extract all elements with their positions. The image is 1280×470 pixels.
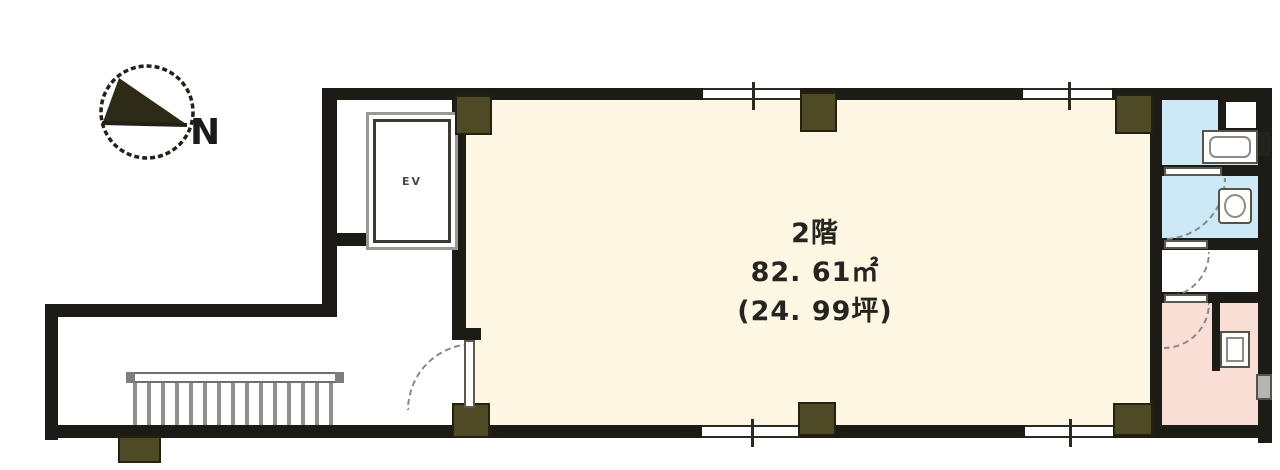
- pillar-wing-bottom: [118, 436, 161, 463]
- left-outer-wall: [45, 304, 58, 440]
- window-mullion: [752, 82, 755, 110]
- entry-door-stub: [452, 328, 481, 340]
- window-bottom-2: [1025, 425, 1113, 438]
- bath-sink-basin: [1226, 337, 1244, 362]
- handrail-post: [335, 372, 344, 383]
- water-heater-box: [1256, 374, 1272, 400]
- window-top-2: [1023, 88, 1112, 100]
- elevator-wall-stub: [322, 233, 368, 246]
- wing-top-wall: [48, 304, 337, 317]
- floor-number-text: 2階: [660, 214, 970, 253]
- area-sqm-text: 82. 61㎡: [660, 253, 970, 292]
- staircase-steps: [133, 383, 338, 427]
- upper-left-wall: [322, 88, 337, 317]
- right-divider-wall: [1150, 95, 1162, 438]
- compass-rose: [95, 58, 205, 168]
- window-bottom-1: [702, 425, 800, 438]
- elevator-shaft: EV: [366, 112, 458, 250]
- pillar-top-right: [1115, 94, 1153, 134]
- entry-door-leaf: [464, 340, 475, 408]
- floor-plan: EV N 2階 82. 61㎡ (24. 99坪): [0, 0, 1280, 470]
- top-wall-segment-1: [322, 88, 703, 100]
- elevator-label: EV: [373, 119, 451, 243]
- alcove-niche: [1226, 102, 1256, 128]
- toilet-bowl: [1224, 194, 1246, 218]
- bath-door-leaf: [1164, 294, 1208, 303]
- toilet-door-leaf: [1164, 167, 1222, 176]
- staircase-handrail: [126, 372, 344, 383]
- pipe-space-box: [1258, 132, 1271, 156]
- area-tsubo-text: (24. 99坪): [660, 292, 970, 331]
- compass-north-label: N: [190, 112, 220, 153]
- powder-counter-basin: [1209, 136, 1251, 158]
- bath-sink-nook-wall: [1212, 303, 1220, 371]
- pillar-bottom-left: [452, 403, 490, 438]
- closet-door-leaf: [1164, 240, 1208, 249]
- window-mullion: [1068, 82, 1071, 110]
- pillar-bottom-mid: [798, 402, 836, 436]
- pillar-top-mid: [800, 92, 837, 132]
- handrail-post: [126, 372, 135, 383]
- pillar-bottom-right: [1113, 403, 1153, 436]
- window-mullion: [1069, 419, 1072, 447]
- pillar-top-left: [455, 95, 492, 135]
- window-top-1: [703, 88, 800, 100]
- area-label: 2階 82. 61㎡ (24. 99坪): [660, 214, 970, 331]
- window-mullion: [751, 419, 754, 447]
